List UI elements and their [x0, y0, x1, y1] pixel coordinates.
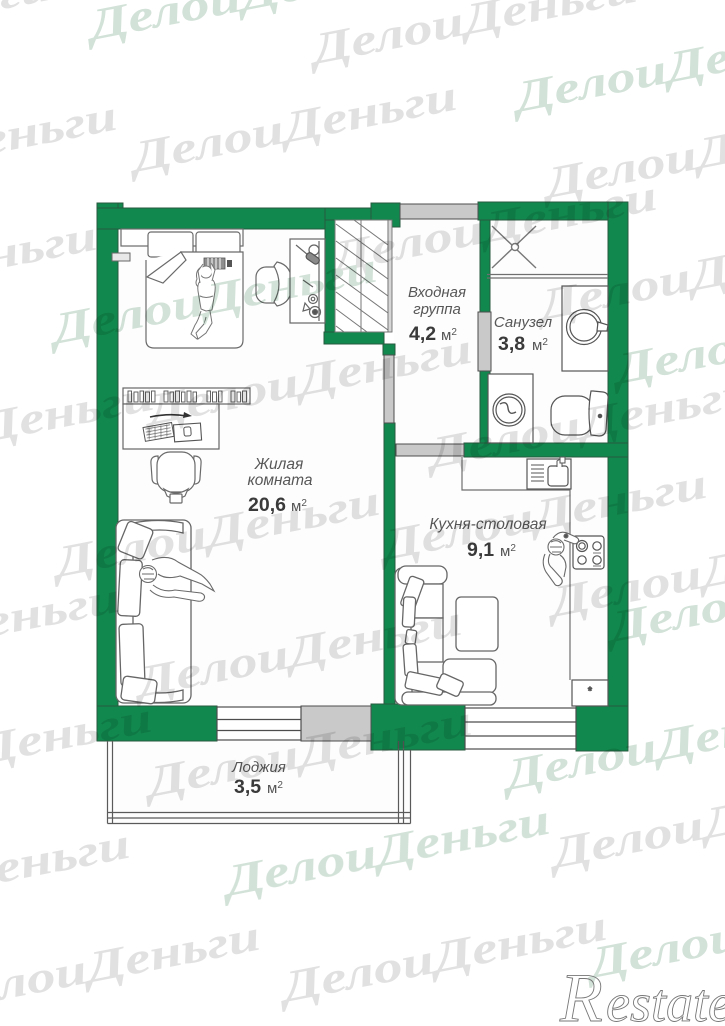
- svg-text:комната: комната: [247, 472, 312, 489]
- svg-text:Жилая: Жилая: [254, 456, 303, 473]
- svg-text:Входная: Входная: [408, 284, 466, 301]
- svg-text:группа: группа: [413, 301, 461, 318]
- svg-text:estate: estate: [606, 973, 725, 1026]
- svg-text:3,8: 3,8: [498, 333, 525, 355]
- svg-text:*: *: [588, 686, 592, 697]
- svg-text:R: R: [559, 960, 603, 1026]
